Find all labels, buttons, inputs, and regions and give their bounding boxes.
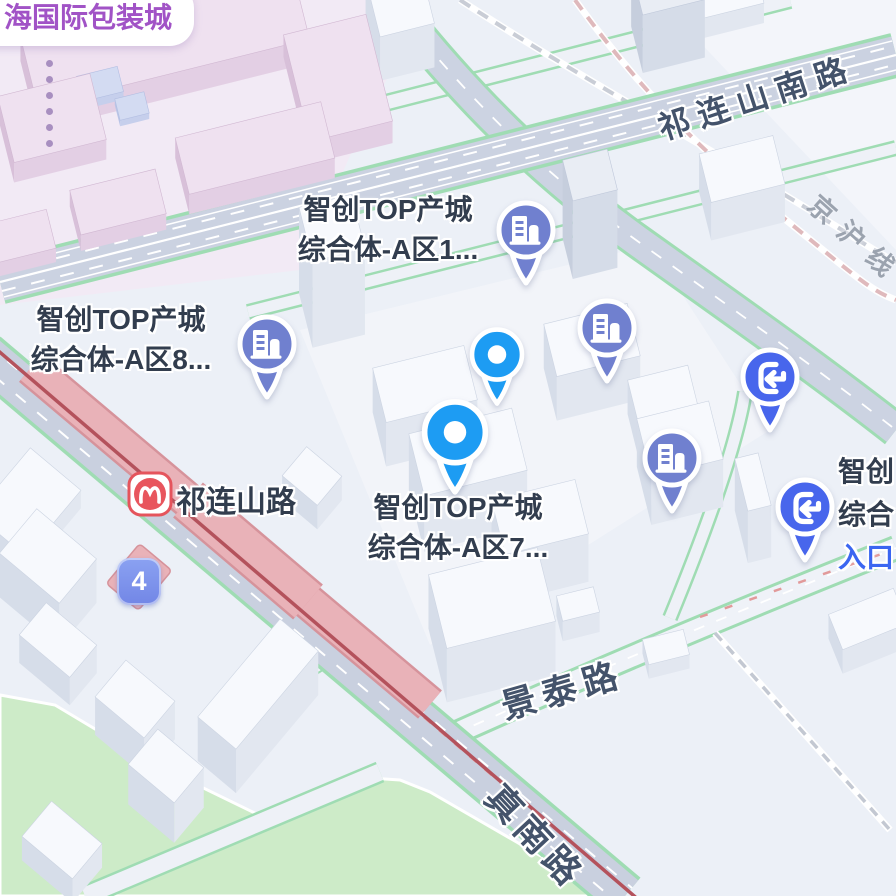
building-pin-a8[interactable] <box>227 310 307 406</box>
route-shield-number: 4 <box>131 566 146 597</box>
poi-label-a1[interactable]: 智创TOP产城 综合体-A区1... <box>298 190 478 270</box>
entrance-pin-1[interactable] <box>730 343 810 439</box>
landmark-label[interactable]: 海国际包装城 <box>0 0 194 46</box>
route-shield-4: 4 <box>117 558 161 605</box>
poi-label-edge-line1: 智创 <box>838 450 896 493</box>
location-dot-pin-2[interactable] <box>410 394 500 502</box>
building-pin-a1[interactable] <box>486 196 566 292</box>
metro-station-name[interactable]: 祁连山路 <box>176 477 296 521</box>
poi-label-edge-line2: 综合 <box>838 493 896 536</box>
poi-label-edge[interactable]: 智创 综合 入口 <box>838 450 896 579</box>
building-pin-mid[interactable] <box>567 294 647 390</box>
poi-label-a8-line1: 智创TOP产城 <box>31 300 211 340</box>
entrance-pin-2[interactable] <box>765 473 845 569</box>
poi-label-a8-line2: 综合体-A区8... <box>31 340 211 380</box>
building-pin-a7[interactable] <box>632 424 712 520</box>
map-canvas[interactable]: 海国际包装城 祁连山南路 京沪线 景泰路 真南路 祁连山路 4 智创TOP产城 … <box>0 0 896 896</box>
poi-label-a8[interactable]: 智创TOP产城 综合体-A区8... <box>31 300 211 380</box>
poi-label-a1-line2: 综合体-A区1... <box>298 230 478 270</box>
metro-logo-icon <box>127 471 173 517</box>
poi-label-a7-line2: 综合体-A区7... <box>368 528 548 568</box>
poi-label-a1-line1: 智创TOP产城 <box>298 190 478 230</box>
metro-station-badge[interactable] <box>127 471 173 517</box>
dotted-route-line <box>46 60 53 147</box>
entrance-label: 入口 <box>838 536 896 579</box>
